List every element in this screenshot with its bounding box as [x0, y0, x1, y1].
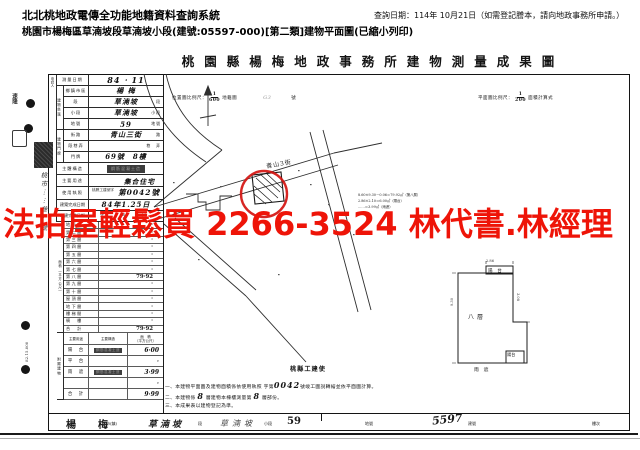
- note-1-number: 0042: [274, 380, 300, 390]
- scan-edge-line: [0, 433, 638, 435]
- note-2-b: 層建物本棟樓測量第: [206, 396, 252, 401]
- punch-hole: [26, 99, 35, 108]
- note-2-a: 二、本建物係: [165, 396, 196, 401]
- margin-small-box: [12, 130, 27, 147]
- plan-dim-top: 2.86: [486, 259, 494, 263]
- scan-edge-line-2: [0, 438, 640, 439]
- footer-section-unit: 段: [198, 421, 202, 427]
- note-1-right: 號竣工圖說轉繪並依平面圖計算。: [300, 385, 376, 390]
- sheet-title: 桃園縣楊梅地政事務所建物測量成果圖: [168, 51, 578, 70]
- footer-city-unit: 市(鎮): [106, 421, 117, 427]
- footer-building-unit: 建號: [468, 421, 476, 427]
- floor-plan-outline: [452, 261, 530, 363]
- margin-stamp-text: 速隆: [10, 93, 18, 104]
- note-line-1: 一、本建物平面圖及建物面積係依使用執照 字第0042號竣工圖說轉繪並依平面圖計算…: [165, 380, 377, 390]
- footer-subsection: 草湳坡: [220, 418, 256, 429]
- note-line-2: 二、本建物係 8 層建物本棟樓測量第 8 層部份。: [165, 391, 282, 401]
- license-stamp-heading: 桃縣工建使: [290, 364, 326, 373]
- note-2-n2: 8: [254, 391, 261, 401]
- calc-line-1: 8.60×9.30－0.06＝79.92㎡（第八層）: [358, 193, 420, 199]
- header-system-title: 北北桃地政電傳全功能地籍資料查詢系統: [22, 7, 220, 23]
- note-2-n1: 8: [197, 391, 204, 401]
- note-1-mid: 字第: [264, 385, 274, 390]
- plan-canopy-label: 雨 遮: [474, 366, 488, 373]
- note-line-3: 三、本成果表以建物登記為準。: [165, 402, 236, 409]
- footer-floor-unit: 樓次: [592, 421, 600, 427]
- header-query-date: 查詢日期：114年 10月21日（如需登記謄本，請向地政事務所申請。）: [374, 10, 624, 21]
- footer-parcel: 59: [287, 416, 301, 427]
- footer-section: 草湳坡: [148, 417, 184, 430]
- footer-tick: [321, 414, 322, 421]
- plan-floor-label: 八層: [468, 312, 486, 321]
- plan-balcony-top-label: 陽 台: [488, 268, 502, 274]
- note-1-left: 一、本建物平面圖及建物面積係依使用執照: [165, 385, 262, 390]
- punch-hole: [21, 321, 30, 330]
- applicant-seal-stamp: [34, 142, 53, 168]
- note-2-c: 層部份。: [262, 396, 282, 401]
- punch-hole: [21, 365, 30, 374]
- header-subtitle: 桃園市楊梅區草湳坡段草湳坡小段(建號:05597-000)[第二類]建物平面圖(…: [22, 23, 413, 38]
- plan-dim-left: 9.30: [450, 298, 454, 306]
- margin-print-code: 82.15.000: [24, 342, 29, 362]
- watermark-text: 法拍屋輕鬆買 2266-3524 林代書.林經理: [3, 199, 613, 245]
- land-registry-print-page: 北北桃地政電傳全功能地籍資料查詢系統 查詢日期：114年 10月21日（如需登記…: [0, 0, 640, 450]
- footer-subsection-unit: 小段: [264, 421, 272, 427]
- plan-balcony-bottom-label: 陽台: [507, 352, 515, 358]
- footer-parcel-unit: 地號: [365, 421, 373, 427]
- plan-dim-right: 3.08: [516, 293, 520, 301]
